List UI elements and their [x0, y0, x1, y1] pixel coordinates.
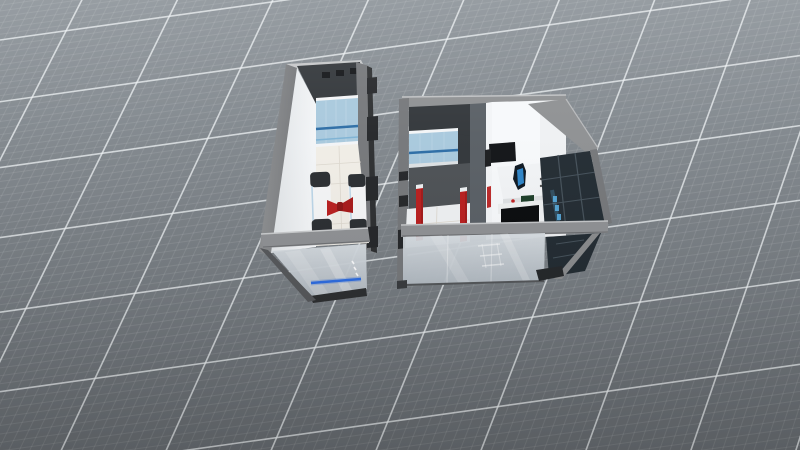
- viewport-3d[interactable]: [0, 0, 800, 450]
- partition-wall-dark-face: [470, 103, 486, 242]
- blue-figurine-center: [517, 168, 524, 186]
- ceiling-stud: [336, 70, 344, 76]
- bed-headboard: [310, 172, 331, 188]
- partition-wall-white-edge: [486, 102, 492, 240]
- red-pillar-middle: [487, 186, 491, 208]
- bed-headboard: [348, 174, 365, 188]
- glass-front[interactable]: [403, 233, 545, 285]
- green-panel: [521, 195, 534, 202]
- base-corner-dark: [397, 280, 407, 289]
- window-frame-tab: [367, 77, 377, 94]
- wall-tab: [399, 171, 408, 181]
- chair-back: [485, 149, 491, 167]
- wall-tab: [399, 195, 408, 207]
- glow-dash: [553, 196, 557, 202]
- scene-canvas[interactable]: [0, 0, 800, 450]
- ceiling-stud: [322, 72, 330, 78]
- red-indicator: [511, 199, 515, 203]
- glow-dash: [557, 214, 561, 220]
- window-frame-tab: [367, 116, 378, 141]
- blue-window[interactable]: [316, 95, 358, 151]
- bow-knot: [337, 202, 343, 211]
- glow-dash: [555, 205, 559, 211]
- chair-seat: [489, 142, 516, 163]
- window-frame-tab: [366, 176, 378, 201]
- desk-knob: [540, 185, 542, 187]
- room-right[interactable]: [397, 95, 612, 289]
